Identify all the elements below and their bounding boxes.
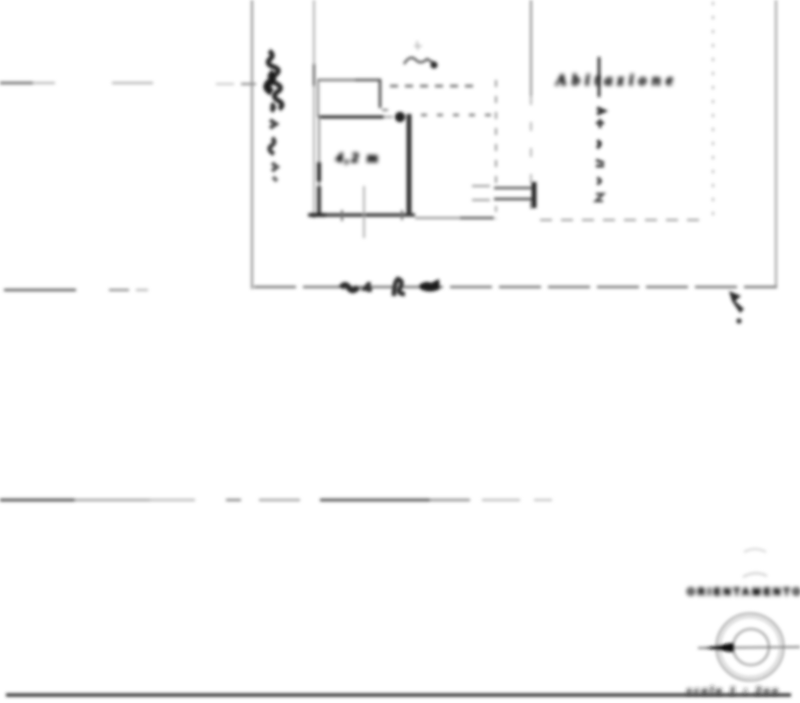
svg-text:Abitazione: Abitazione [555, 72, 678, 89]
svg-text:4,2 m: 4,2 m [335, 151, 380, 166]
svg-text:scala 1 : 2oo: scala 1 : 2oo [686, 685, 781, 697]
svg-text:ORIENTAMENTO: ORIENTAMENTO [687, 587, 800, 598]
